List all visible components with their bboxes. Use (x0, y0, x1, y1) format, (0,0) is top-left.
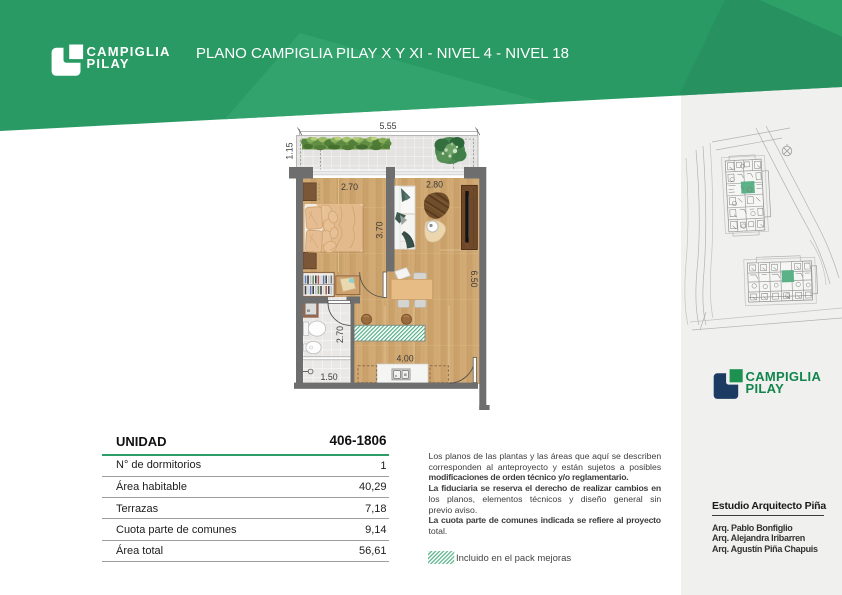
svg-text:2.70: 2.70 (335, 326, 345, 343)
svg-text:2.70: 2.70 (341, 182, 358, 192)
svg-text:6.50: 6.50 (469, 270, 479, 287)
svg-text:3.70: 3.70 (375, 221, 385, 238)
svg-text:4.00: 4.00 (397, 354, 414, 364)
svg-text:1.50: 1.50 (321, 372, 338, 382)
svg-text:2.80: 2.80 (426, 180, 443, 190)
svg-text:1.15: 1.15 (285, 142, 295, 159)
svg-text:5.55: 5.55 (379, 121, 396, 131)
